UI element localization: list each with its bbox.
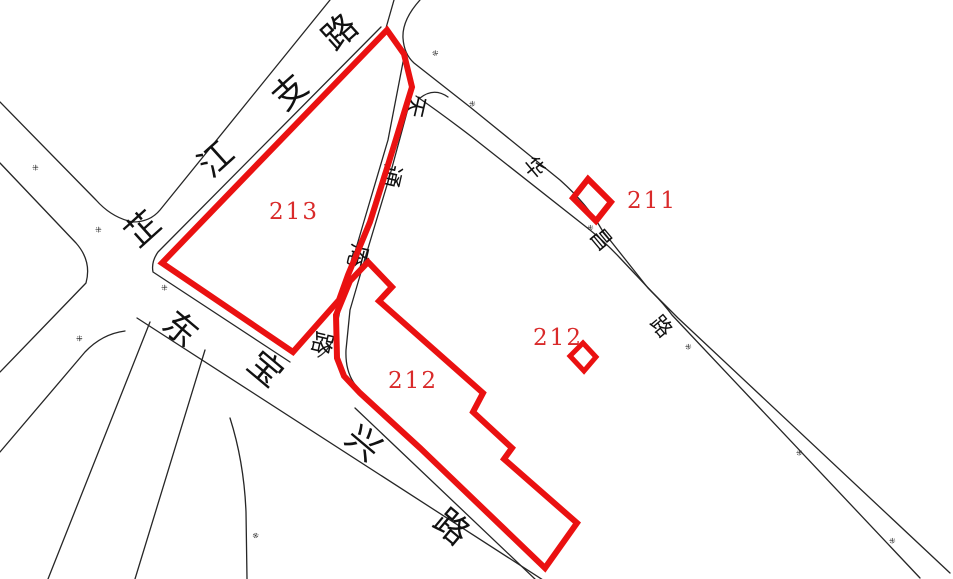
road-edge-zhijiang-left [0,0,330,222]
parcel-label-212-small: 212 [533,325,583,351]
tiny-annotation: ※ [159,282,170,293]
map-canvas: ※ ※ ※ ※ ※ ※ ※ ※ ※ ※ ※ 芷 江 支 路 东 宝 兴 路 天 … [0,0,953,579]
road-edge-tiantongan-east [346,90,413,387]
tiny-annotation: ※ [74,333,85,344]
road-name-char: 宝 [239,343,291,395]
tiny-annotation: ※ [466,99,477,110]
road-edge-nw-lower [0,163,88,372]
road-edge-ssw-east [135,350,205,579]
tiny-annotation: ※ [682,342,693,353]
road-name-char: 东 [154,303,206,355]
parcels-layer [162,30,611,568]
tiny-annotation: ※ [93,224,104,235]
parcel-label-211: 211 [627,188,677,214]
road-name-char: 华 [518,152,550,184]
tiny-annotation: ※ [250,531,260,540]
tiny-annotation: ※ [793,448,804,459]
road-name-zhijiang: 芷 江 支 路 [117,6,366,255]
road-name-char: 路 [314,6,366,58]
road-name-huachang: 华 昌 路 [518,152,677,343]
parcel-labels-layer: 213 212 212 211 [269,188,677,394]
tiny-marks-layer: ※ ※ ※ ※ ※ ※ ※ ※ ※ ※ ※ [30,48,898,546]
parcel-211-boundary[interactable] [573,179,611,221]
tiny-annotation: ※ [429,48,440,59]
road-names-layer: 芷 江 支 路 东 宝 兴 路 天 通 庵 路 华 昌 路 [117,6,677,554]
parcel-label-213: 213 [269,199,319,225]
road-edge-ssw-west [48,322,150,579]
road-edge-zhijiang-right-stub [386,0,394,28]
road-edge-ssw-branch [230,418,247,579]
road-name-char: 江 [190,133,242,185]
road-edge-huachang-sw [416,96,920,578]
road-edge-huachang-ne [403,0,950,573]
parcel-label-212: 212 [388,368,438,394]
cadastral-map: ※ ※ ※ ※ ※ ※ ※ ※ ※ ※ ※ 芷 江 支 路 东 宝 兴 路 天 … [0,0,953,579]
roads-layer [0,0,950,579]
road-name-char: 兴 [337,417,389,469]
tiny-annotation: ※ [30,162,41,173]
